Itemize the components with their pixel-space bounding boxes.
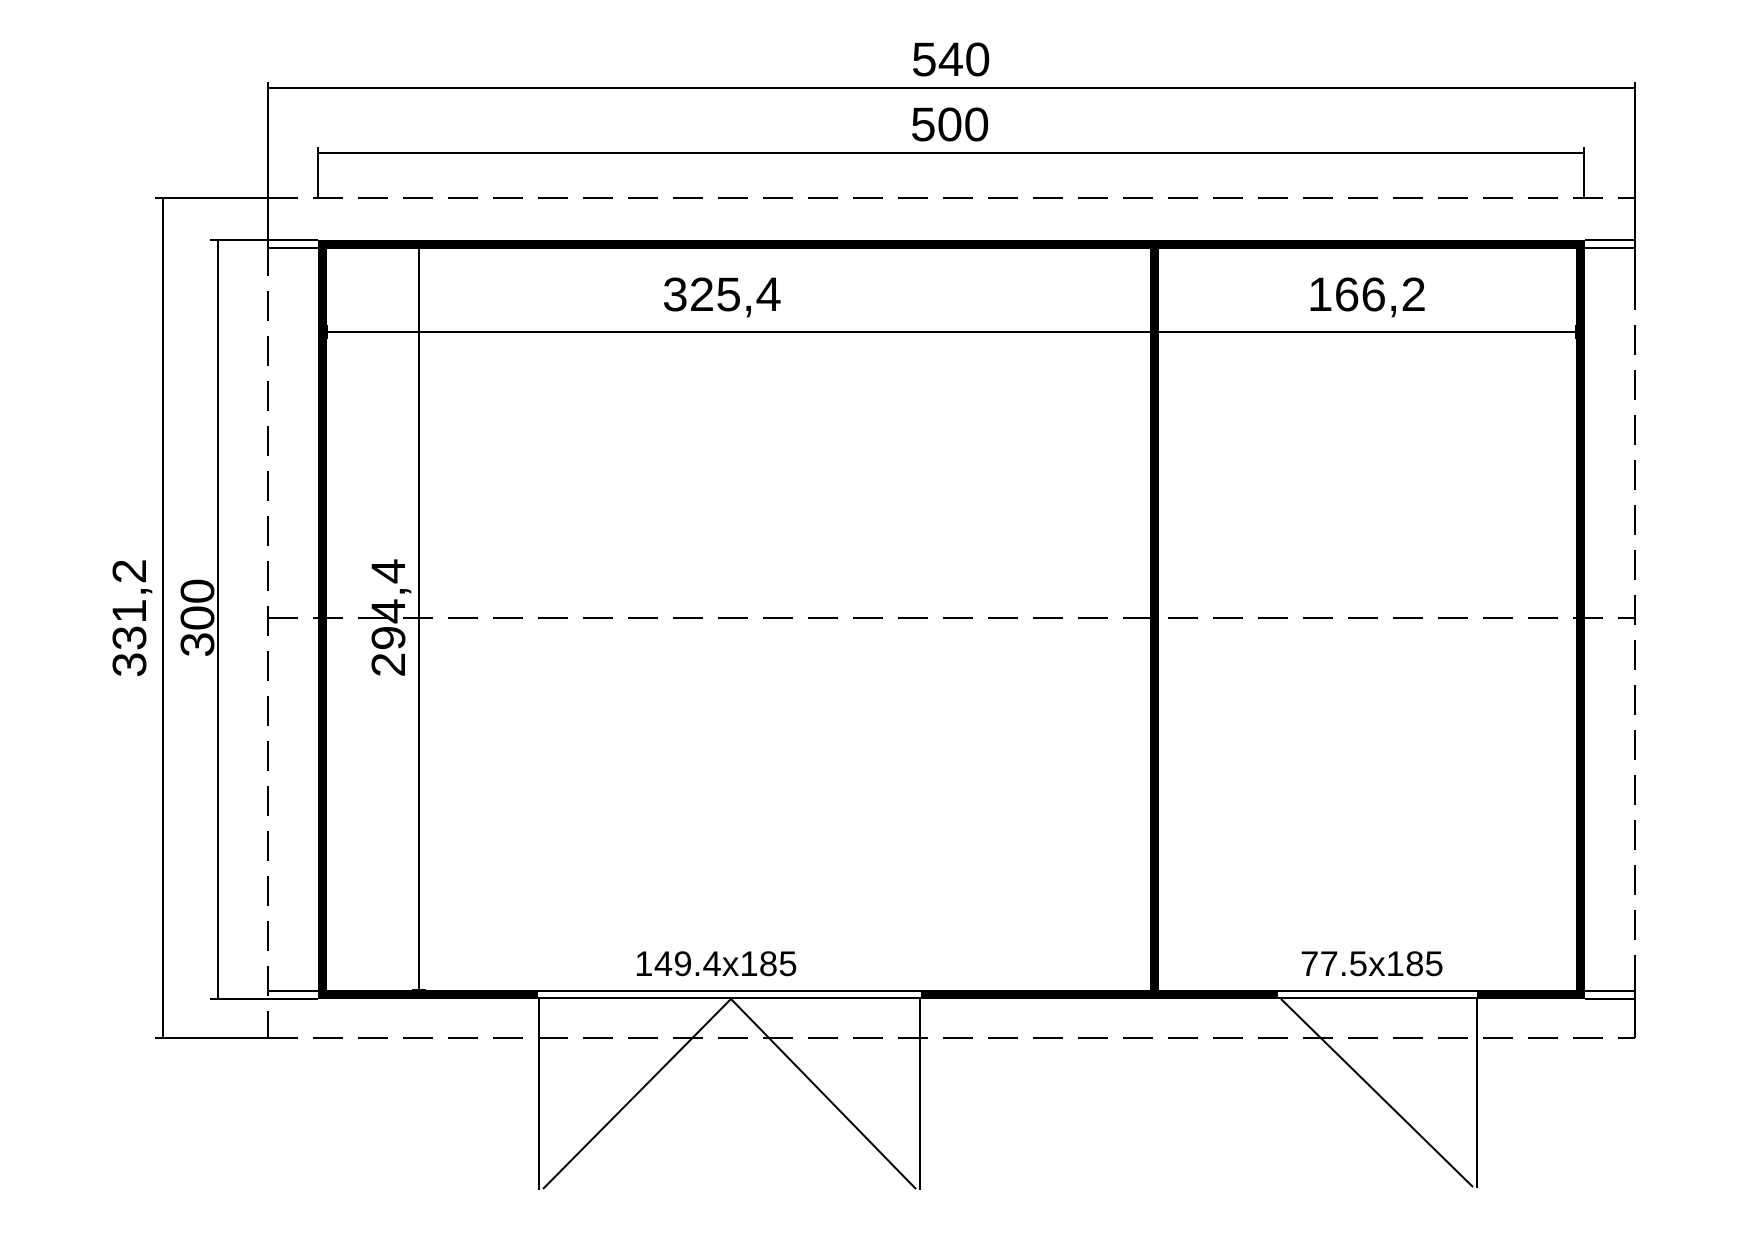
wall-bottom-segment-middle (922, 990, 1277, 999)
dimension-wall-width (318, 147, 1584, 198)
wall-top (318, 240, 1585, 249)
dim-label-right-room-width: 166,2 (1307, 272, 1427, 320)
door-opening-double (537, 990, 922, 999)
wall-left (318, 240, 327, 999)
door-opening-single (1277, 990, 1478, 999)
exterior-walls (318, 240, 1585, 999)
wall-bottom-segment-left (318, 990, 537, 999)
dim-label-left-room-width: 325,4 (662, 272, 782, 320)
door-label-double: 149.4x185 (634, 947, 797, 982)
wall-bottom-segment-right (1478, 990, 1585, 999)
partition-wall (1150, 249, 1159, 990)
dim-label-wall-depth: 300 (175, 578, 223, 658)
door-swing-double (539, 998, 920, 1190)
wall-right (1576, 240, 1585, 999)
swing-right (731, 999, 916, 1189)
door-label-single: 77.5x185 (1300, 947, 1444, 982)
dim-label-roof-depth: 331,2 (107, 558, 155, 678)
dim-label-wall-width: 500 (910, 102, 990, 150)
dim-label-room-depth: 294,4 (366, 558, 414, 678)
floor-plan-canvas: 540 500 331,2 300 325,4 166,2 294,4 149.… (0, 0, 1754, 1240)
dim-label-roof-width: 540 (911, 37, 991, 85)
eave-edges (268, 240, 1635, 1038)
floor-plan-drawing (0, 0, 1754, 1240)
swing (1281, 999, 1473, 1187)
dimension-wall-depth (210, 240, 318, 999)
door-swing-single (1281, 998, 1477, 1188)
swing-left (543, 999, 731, 1189)
dimension-room-widths (327, 325, 1576, 339)
